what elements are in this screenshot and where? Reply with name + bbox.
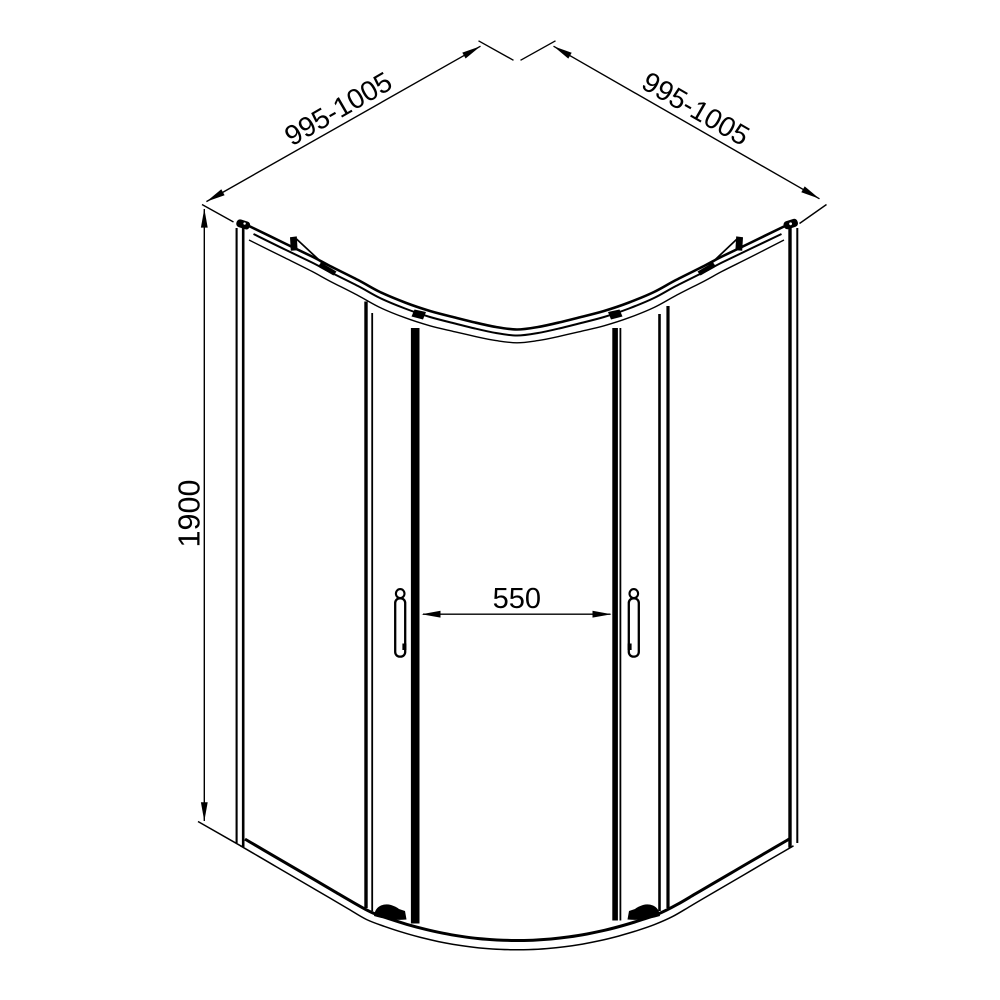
svg-text:550: 550 — [493, 583, 541, 615]
svg-text:1900: 1900 — [173, 480, 207, 548]
